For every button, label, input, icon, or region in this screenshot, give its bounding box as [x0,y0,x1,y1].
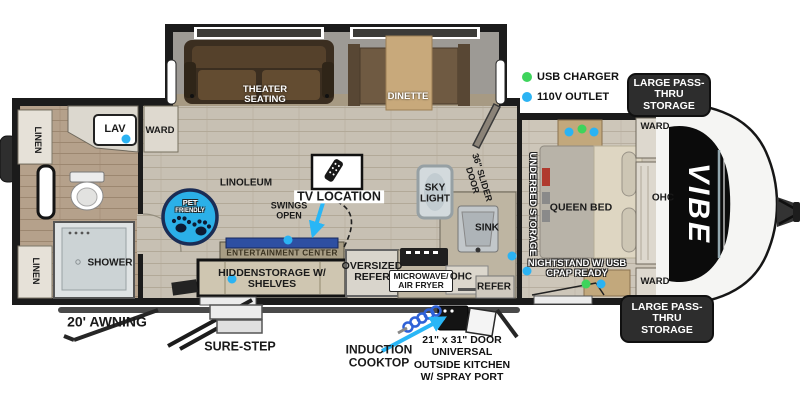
sure-step-label: SURE-STEP [204,340,276,353]
theater-seating-label: THEATER SEATING [233,85,297,105]
ohc-label-bed: OHC [652,194,674,205]
legend-outlet-label: 110V OUTLET [537,91,609,103]
pet-friendly-label-1: PET [183,199,198,207]
legend-usb: USB CHARGER [522,71,619,83]
outside-kitchen-line: W/ SPRAY PORT [414,371,510,383]
hitch [777,197,800,227]
ward-label-bed-bottom: WARD [640,277,669,287]
queen-bed-label: QUEEN BED [550,202,612,213]
outside-kitchen-line: UNIVERSAL [414,346,510,358]
entertainment-counter-blue [226,238,338,248]
microwave-label: MICROWAVE/ AIR FRYER [389,270,453,292]
pass-thru-storage-bottom-label: LARGE PASS-THRU STORAGE [629,302,705,337]
rear-window [38,166,54,218]
lav-label: LAV [104,124,125,136]
outlet-110v-icon [522,92,532,102]
entertainment-center-label: ENTERTAINMENT CENTER [226,250,337,259]
pet-friendly-label-2: FRIENDLY [175,208,204,214]
awning-label: 20' AWNING [67,315,147,330]
swings-open-label: SWINGS OPEN [264,201,314,220]
usb-charger-icon [522,72,532,82]
rv-floorplan: LINEN LAV LINEN SHOWER WARD THEATER SEAT… [0,0,800,400]
underbed-storage-label: UNDERBED STORAGE [527,152,537,255]
ohc-label-kitchen: OHC [450,273,472,284]
shower-label: SHOWER [88,259,133,270]
pass-thru-storage-top-label: LARGE PASS-THRU STORAGE [632,78,706,113]
legend-outlet: 110V OUTLET [522,91,609,103]
nightstand-label: NIGHTSTAND W/ USB CPAP READY [518,259,636,279]
slideout-side-window [496,60,505,104]
outside-kitchen-door [466,308,496,336]
pass-thru-storage-top: LARGE PASS-THRU STORAGE [627,73,711,117]
ward-label-bed-top: WARD [640,122,669,132]
outside-kitchen-line: 21" x 31" DOOR [414,334,510,346]
entry-door-bedroom [534,296,592,304]
refer-label: REFER [477,283,511,294]
legend-usb-label: USB CHARGER [537,71,619,83]
outside-kitchen-label: 21" x 31" DOOR UNIVERSAL OUTSIDE KITCHEN… [414,334,510,384]
linen-top-label: LINEN [32,127,42,154]
linen-bottom-label: LINEN [30,258,40,285]
sky-light-label: SKY LIGHT [416,183,454,204]
induction-cooktop-label: INDUCTION COOKTOP [332,343,427,368]
slideout-side-window [167,60,176,104]
linoleum-label: LINOLEUM [220,179,272,190]
sink-label: SINK [475,224,499,235]
toilet-tank [70,172,104,182]
pass-thru-storage-bottom: LARGE PASS-THRU STORAGE [620,295,714,343]
brand-logo: VIBE [682,163,714,245]
awning-arm-right [497,310,517,337]
outside-kitchen-line: OUTSIDE KITCHEN [414,359,510,371]
dinette-label: DINETTE [388,92,429,102]
ward-label-living: WARD [145,126,174,136]
hidden-storage-label: HIDDENSTORAGE W/ SHELVES [213,268,331,290]
